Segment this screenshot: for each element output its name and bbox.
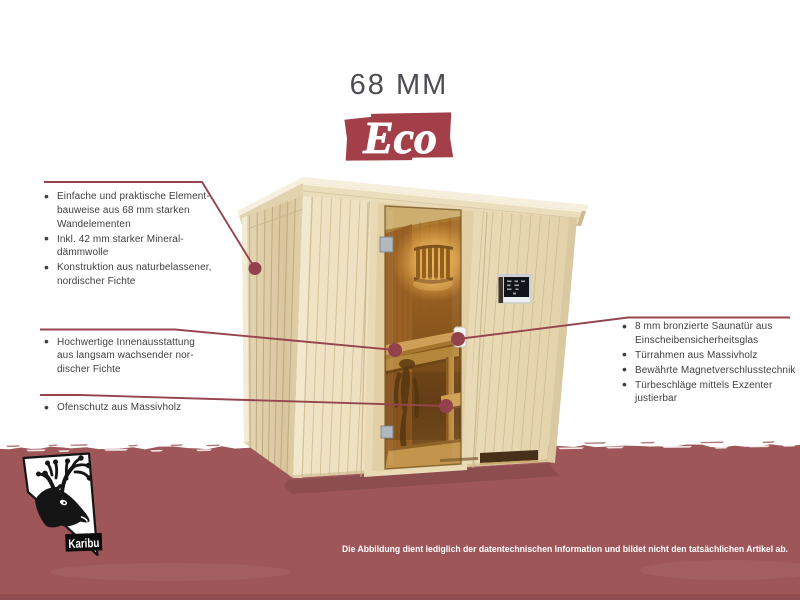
svg-text:68 MM: 68 MM xyxy=(350,69,449,101)
svg-text:Eco: Eco xyxy=(362,112,437,163)
svg-text:Karibu: Karibu xyxy=(68,536,99,551)
svg-text:Die Abbildung dient lediglich: Die Abbildung dient lediglich der datent… xyxy=(342,544,788,554)
